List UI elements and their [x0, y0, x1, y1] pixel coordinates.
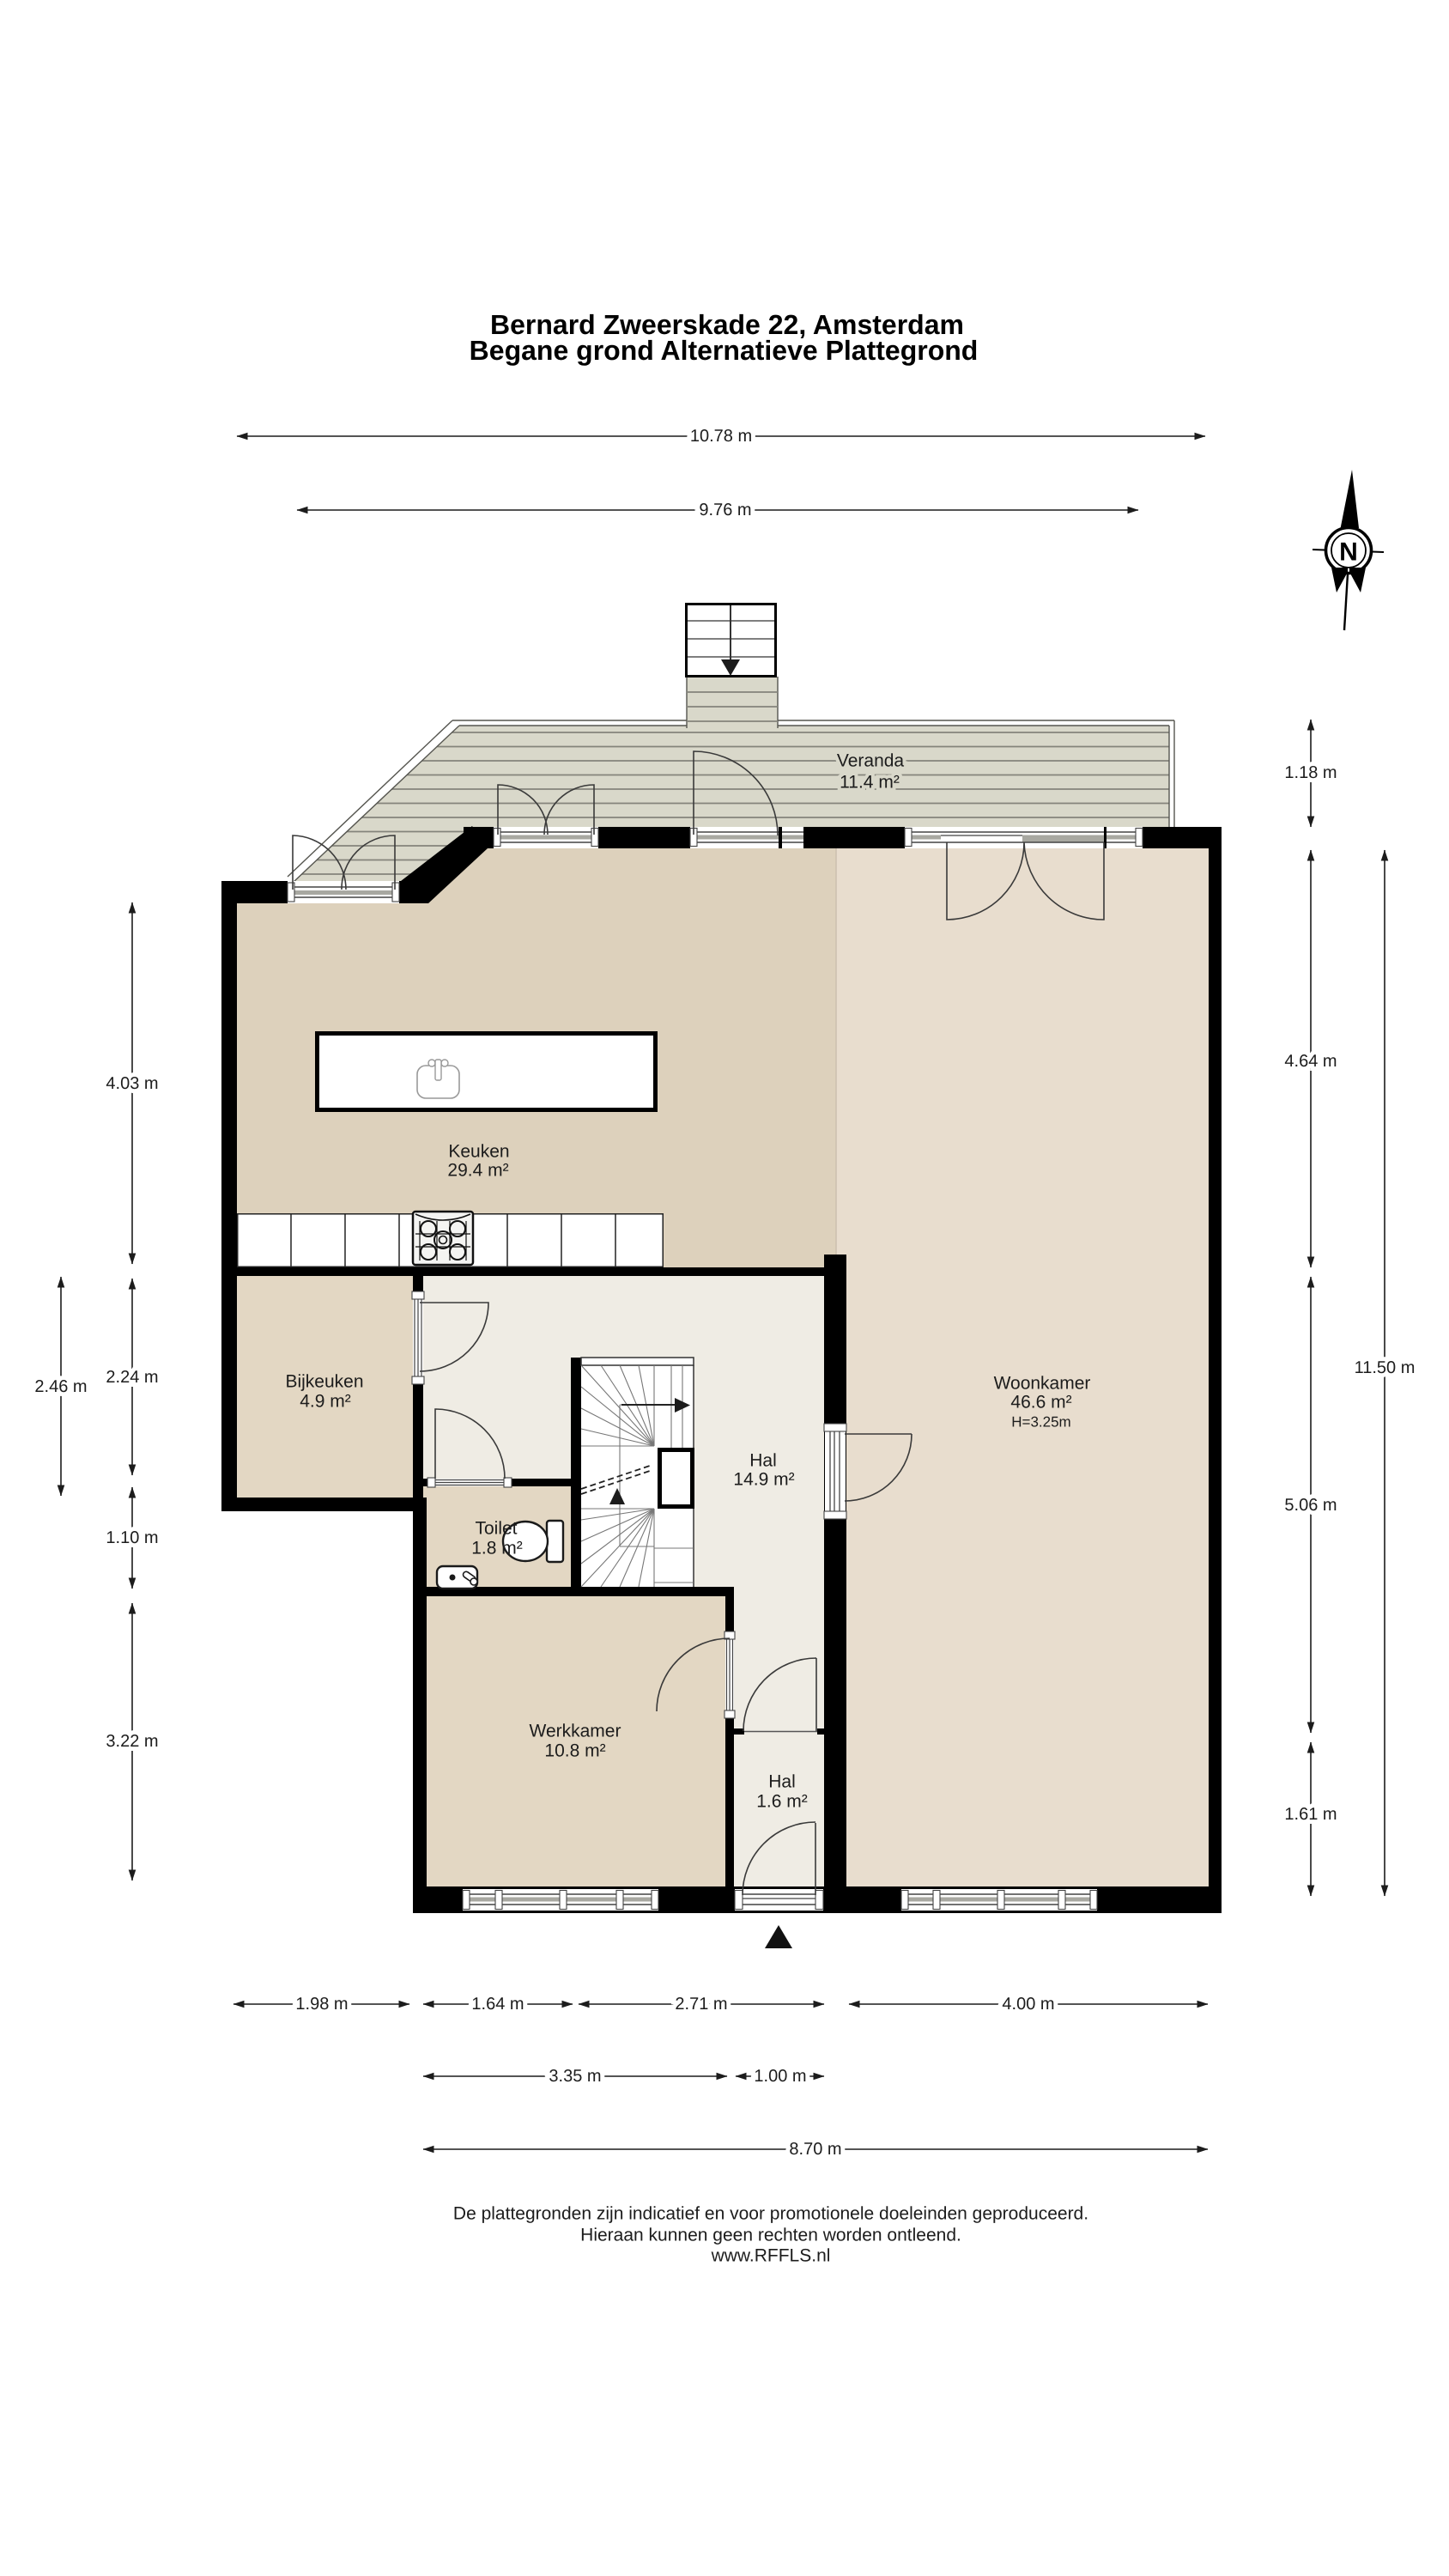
svg-text:H=3.25m: H=3.25m	[1011, 1414, 1070, 1431]
svg-text:1.10 m: 1.10 m	[106, 1528, 158, 1547]
svg-text:4.03 m: 4.03 m	[106, 1074, 158, 1093]
svg-text:www.RFFLS.nl: www.RFFLS.nl	[711, 2246, 831, 2266]
svg-text:Begane grond Alternatieve Plat: Begane grond Alternatieve Plattegrond	[470, 335, 979, 366]
svg-text:Toilet: Toilet	[475, 1519, 517, 1539]
svg-text:4.9 m²: 4.9 m²	[300, 1392, 351, 1412]
svg-text:2.24 m: 2.24 m	[106, 1368, 158, 1387]
svg-text:Hal: Hal	[749, 1451, 777, 1471]
svg-text:Werkkamer: Werkkamer	[530, 1722, 621, 1741]
svg-text:3.22 m: 3.22 m	[106, 1732, 158, 1751]
svg-text:29.4 m²: 29.4 m²	[447, 1161, 508, 1181]
svg-text:1.64 m: 1.64 m	[471, 1995, 524, 2014]
svg-text:2.46 m: 2.46 m	[34, 1377, 87, 1396]
svg-text:8.70 m: 8.70 m	[789, 2140, 841, 2159]
svg-text:4.00 m: 4.00 m	[1002, 1995, 1054, 2014]
svg-text:10.8 m²: 10.8 m²	[544, 1741, 605, 1761]
svg-text:Woonkamer: Woonkamer	[994, 1374, 1091, 1394]
svg-text:Hieraan kunnen geen rechten wo: Hieraan kunnen geen rechten worden ontle…	[580, 2226, 961, 2245]
svg-text:1.98 m: 1.98 m	[295, 1995, 348, 2014]
svg-text:1.8 m²: 1.8 m²	[471, 1539, 523, 1558]
svg-text:46.6 m²: 46.6 m²	[1010, 1393, 1071, 1413]
svg-text:5.06 m: 5.06 m	[1284, 1496, 1337, 1515]
svg-text:11.4 m²: 11.4 m²	[840, 773, 900, 793]
svg-text:Veranda: Veranda	[837, 751, 905, 771]
svg-text:4.64 m: 4.64 m	[1284, 1052, 1337, 1071]
svg-text:1.18 m: 1.18 m	[1284, 763, 1337, 782]
svg-text:Keuken: Keuken	[448, 1142, 509, 1162]
svg-text:9.76 m: 9.76 m	[699, 501, 751, 519]
svg-text:10.78 m: 10.78 m	[690, 427, 752, 446]
svg-text:3.35 m: 3.35 m	[549, 2067, 601, 2086]
svg-text:1.6 m²: 1.6 m²	[756, 1792, 808, 1812]
svg-text:2.71 m: 2.71 m	[675, 1995, 727, 2014]
svg-text:1.00 m: 1.00 m	[754, 2067, 806, 2086]
svg-text:1.61 m: 1.61 m	[1284, 1805, 1337, 1824]
svg-text:De plattegronden zijn indicati: De plattegronden zijn indicatief en voor…	[453, 2204, 1088, 2224]
svg-text:Bijkeuken: Bijkeuken	[285, 1372, 363, 1392]
svg-text:Hal: Hal	[768, 1772, 796, 1792]
svg-text:N: N	[1339, 538, 1358, 567]
svg-text:14.9 m²: 14.9 m²	[733, 1470, 794, 1490]
svg-text:11.50 m: 11.50 m	[1355, 1358, 1416, 1377]
